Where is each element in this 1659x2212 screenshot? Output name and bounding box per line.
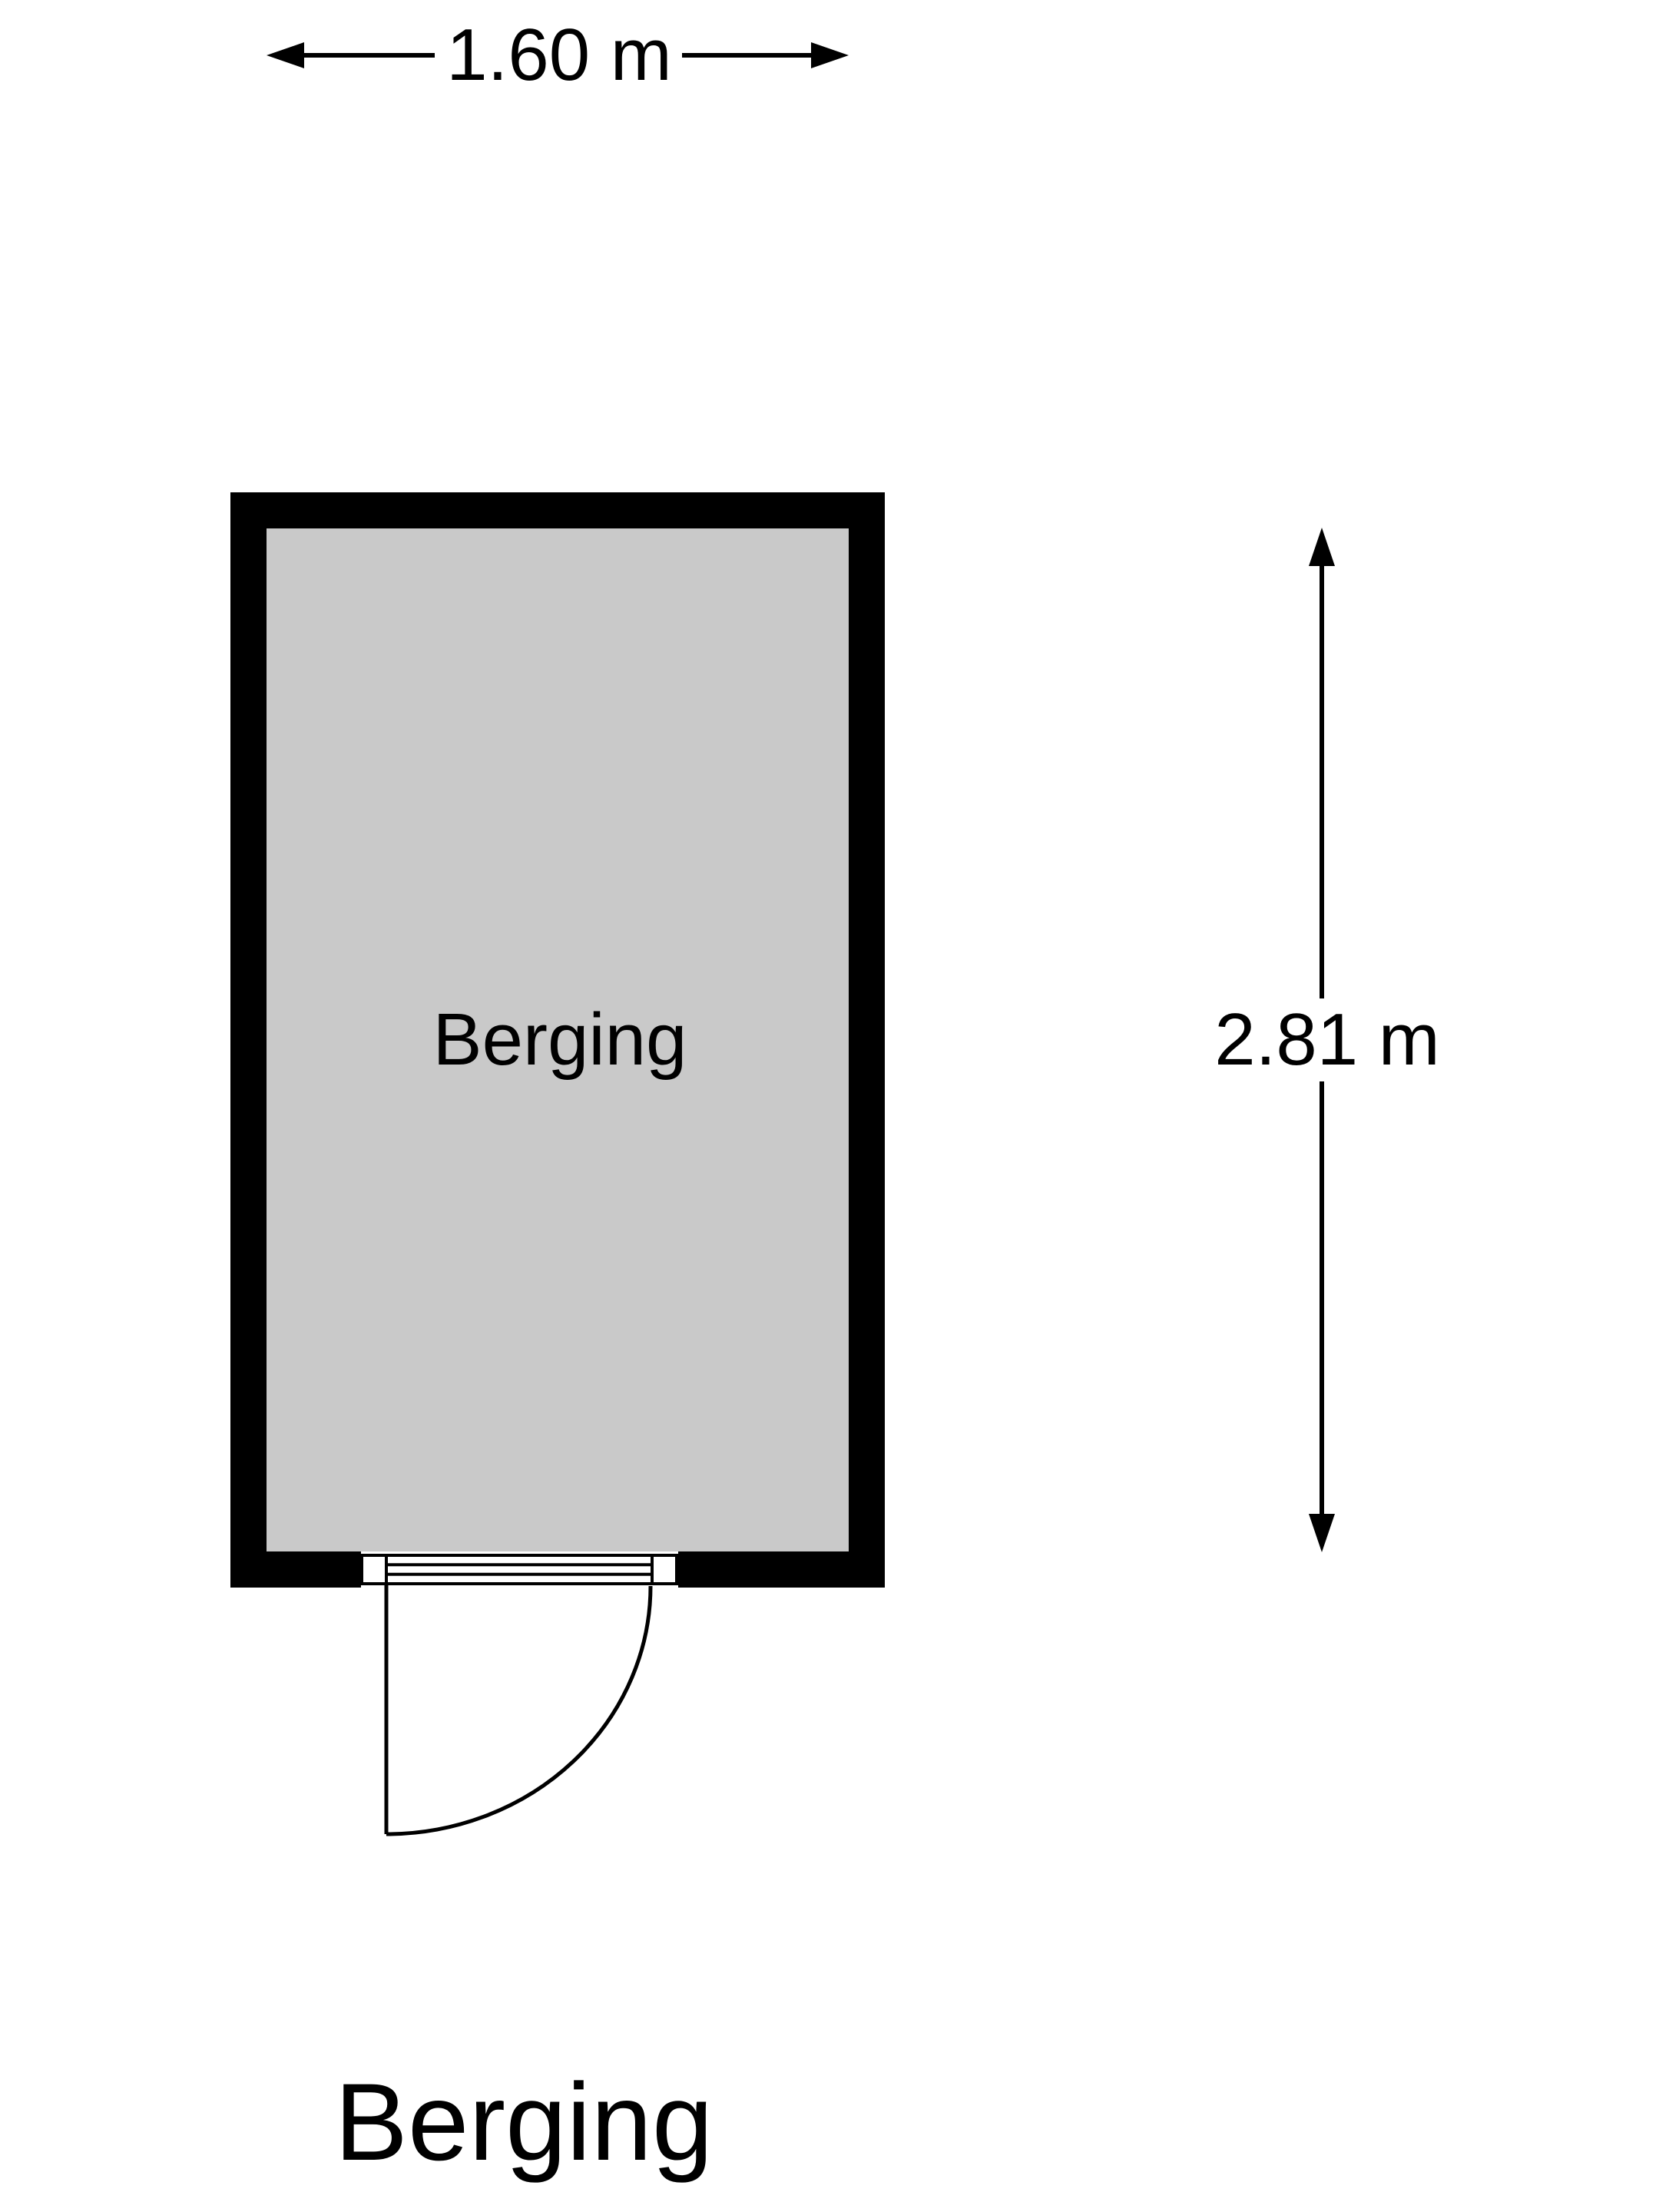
svg-text:2.81 m: 2.81 m [1214,998,1439,1081]
svg-text:Berging: Berging [335,2061,714,2184]
svg-text:Berging: Berging [433,998,687,1081]
svg-text:1.60 m: 1.60 m [446,14,671,96]
